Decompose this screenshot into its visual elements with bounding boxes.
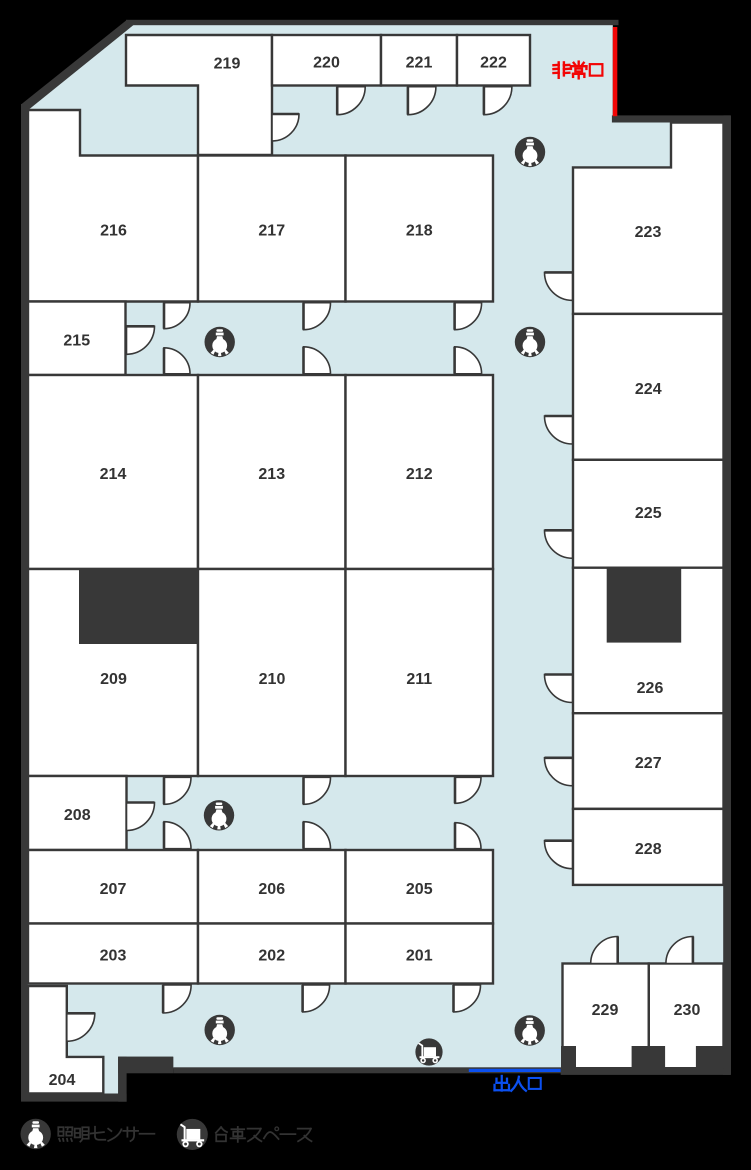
svg-text:220: 220 — [313, 54, 340, 71]
svg-text:202: 202 — [258, 948, 285, 965]
svg-text:212: 212 — [406, 466, 433, 483]
svg-text:225: 225 — [635, 505, 662, 522]
svg-text:223: 223 — [635, 224, 662, 241]
svg-text:204: 204 — [49, 1072, 76, 1089]
svg-text:230: 230 — [674, 1002, 701, 1019]
svg-text:213: 213 — [258, 466, 285, 483]
svg-text:206: 206 — [258, 881, 285, 898]
svg-text:221: 221 — [406, 54, 433, 71]
svg-text:207: 207 — [100, 881, 127, 898]
svg-text:217: 217 — [258, 223, 285, 240]
svg-text:203: 203 — [100, 948, 127, 965]
svg-text:211: 211 — [406, 671, 432, 688]
svg-text:219: 219 — [214, 56, 241, 73]
svg-text:209: 209 — [100, 671, 127, 688]
svg-text:224: 224 — [635, 381, 662, 398]
svg-text:229: 229 — [592, 1002, 619, 1019]
svg-text:210: 210 — [259, 671, 286, 688]
svg-text:218: 218 — [406, 223, 433, 240]
svg-text:227: 227 — [635, 755, 662, 772]
svg-text:214: 214 — [100, 466, 127, 483]
svg-text:222: 222 — [480, 54, 507, 71]
svg-text:208: 208 — [64, 807, 91, 824]
svg-text:215: 215 — [63, 332, 90, 349]
svg-text:228: 228 — [635, 841, 662, 858]
svg-text:201: 201 — [406, 948, 433, 965]
svg-text:226: 226 — [637, 680, 664, 697]
svg-text:216: 216 — [100, 223, 127, 240]
svg-text:205: 205 — [406, 881, 433, 898]
